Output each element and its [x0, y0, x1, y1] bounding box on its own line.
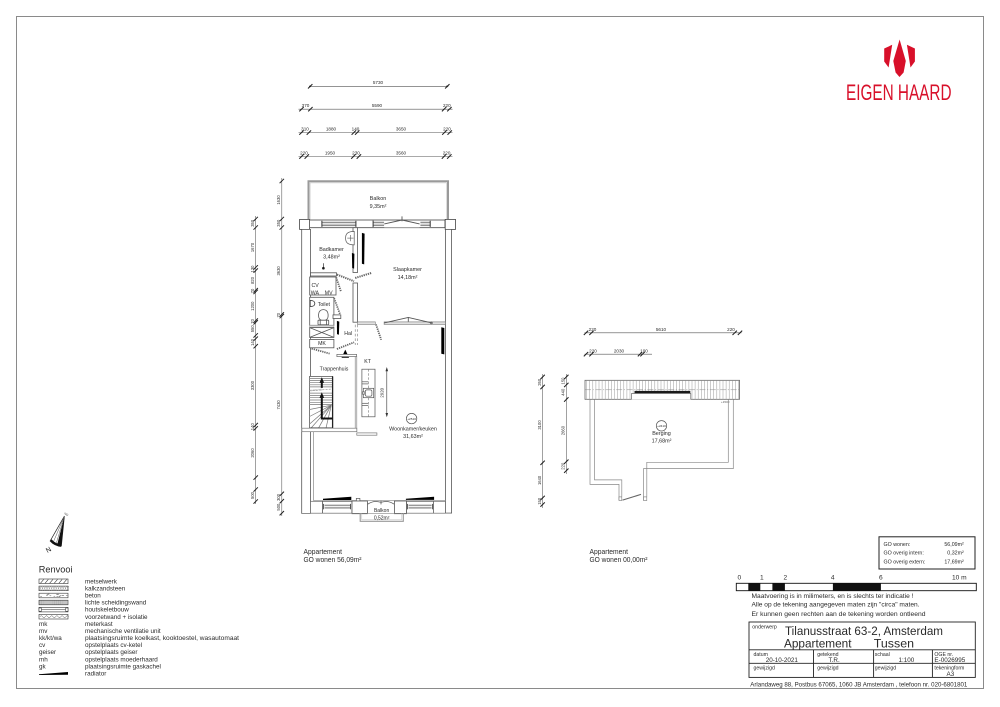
- svg-text:mk: mk: [39, 621, 48, 628]
- svg-text:70: 70: [250, 318, 255, 323]
- svg-text:220: 220: [443, 103, 451, 108]
- svg-text:370: 370: [302, 103, 310, 108]
- svg-text:Renvooi: Renvooi: [39, 565, 73, 575]
- svg-text:T.R.: T.R.: [829, 657, 840, 664]
- svg-text:1950: 1950: [325, 151, 336, 156]
- svg-text:820: 820: [250, 276, 255, 284]
- svg-text:260: 260: [537, 378, 542, 386]
- svg-text:gk: gk: [39, 663, 47, 670]
- svg-text:plaatsingsruimte koelkast, koo: plaatsingsruimte koelkast, kooktoestel, …: [85, 635, 239, 642]
- svg-text:17,69m²: 17,69m²: [944, 559, 964, 565]
- svg-text:500: 500: [276, 503, 281, 511]
- svg-text:5590: 5590: [372, 103, 383, 108]
- svg-text:220: 220: [589, 327, 597, 332]
- svg-text:220: 220: [443, 127, 451, 132]
- svg-text:cv: cv: [39, 642, 46, 649]
- svg-text:meterkast: meterkast: [85, 621, 113, 628]
- svg-text:voorzetwand + isolatie: voorzetwand + isolatie: [85, 614, 148, 621]
- svg-text:3,48m²: 3,48m²: [323, 255, 340, 261]
- svg-text:1:100: 1:100: [899, 657, 915, 664]
- svg-text:5610: 5610: [656, 327, 667, 332]
- svg-text:Woonkamer/keuken: Woonkamer/keuken: [389, 426, 437, 432]
- svg-text:140: 140: [250, 338, 255, 346]
- svg-text:schaal: schaal: [875, 652, 890, 658]
- svg-text:GO wonen 00,00m²: GO wonen 00,00m²: [590, 555, 648, 564]
- svg-text:+2410: +2410: [657, 424, 666, 428]
- svg-text:5730: 5730: [373, 80, 384, 85]
- svg-text:150: 150: [561, 377, 566, 385]
- svg-text:GO overig extern:: GO overig extern:: [884, 559, 926, 565]
- svg-text:1: 1: [760, 575, 764, 582]
- svg-text:9,35m²: 9,35m²: [370, 204, 387, 210]
- svg-text:3560: 3560: [396, 151, 407, 156]
- svg-text:70: 70: [276, 312, 281, 317]
- svg-text:geiser: geiser: [39, 649, 56, 656]
- svg-text:Maatvoering is in milimeters,: Maatvoering is in milimeters, en is slec…: [752, 593, 914, 600]
- svg-text:2920: 2920: [380, 387, 385, 397]
- svg-text:1630: 1630: [276, 195, 281, 205]
- svg-text:550: 550: [250, 325, 255, 333]
- svg-text:gewijzigd: gewijzigd: [875, 666, 896, 672]
- svg-text:440: 440: [561, 388, 566, 396]
- svg-text:130: 130: [250, 265, 255, 273]
- svg-text:Appartement: Appartement: [784, 636, 852, 650]
- svg-text:Hal: Hal: [344, 331, 352, 337]
- svg-text:opstelplaats cv-ketel: opstelplaats cv-ketel: [85, 642, 142, 649]
- svg-text:7430: 7430: [276, 400, 281, 410]
- svg-text:140: 140: [250, 423, 255, 431]
- svg-text:4: 4: [831, 575, 835, 582]
- svg-text:kalkzandsteen: kalkzandsteen: [85, 586, 126, 593]
- svg-text:56,09m²: 56,09m²: [944, 542, 964, 548]
- svg-text:mv: mv: [39, 628, 48, 635]
- svg-text:310: 310: [301, 127, 309, 132]
- svg-text:350: 350: [276, 219, 281, 227]
- svg-text:lichte scheidingswand: lichte scheidingswand: [85, 600, 147, 607]
- svg-text:2030: 2030: [614, 348, 625, 353]
- svg-text:mechanische ventilatie unit: mechanische ventilatie unit: [85, 628, 161, 635]
- svg-text:6: 6: [879, 575, 883, 582]
- svg-text:3300: 3300: [250, 380, 255, 390]
- svg-text:Toilet: Toilet: [318, 302, 331, 308]
- svg-text:gewijzigd: gewijzigd: [754, 666, 775, 672]
- svg-text:220: 220: [561, 462, 566, 470]
- svg-text:70: 70: [250, 288, 255, 293]
- svg-text:10 m: 10 m: [952, 575, 967, 582]
- svg-text:A3: A3: [947, 671, 955, 678]
- svg-text:1200: 1200: [250, 301, 255, 311]
- svg-text:houtskeletbouw: houtskeletbouw: [85, 607, 129, 614]
- svg-text:2060: 2060: [250, 448, 255, 458]
- svg-text:EIGEN HAARD: EIGEN HAARD: [846, 80, 952, 105]
- svg-text:500: 500: [250, 491, 255, 499]
- svg-text:kk/kt/wa: kk/kt/wa: [39, 635, 62, 642]
- svg-text:3650: 3650: [396, 127, 407, 132]
- svg-text:2660: 2660: [561, 425, 566, 435]
- svg-text:Badkamer: Badkamer: [319, 247, 344, 253]
- svg-text:gewijzigd: gewijzigd: [817, 666, 838, 672]
- svg-text:Alle op de tekening aangegeven: Alle op de tekening aangegeven maten zij…: [752, 602, 920, 609]
- svg-text:mh: mh: [39, 656, 48, 663]
- svg-text:MV: MV: [325, 290, 333, 296]
- svg-text:1640: 1640: [537, 475, 542, 485]
- svg-text:onderwerp: onderwerp: [752, 625, 777, 631]
- svg-text:150: 150: [537, 497, 542, 505]
- svg-text:Balkon: Balkon: [370, 196, 386, 202]
- svg-text:14,18m²: 14,18m²: [398, 275, 418, 281]
- svg-text:0,32m²: 0,32m²: [947, 551, 964, 557]
- svg-text:MK: MK: [318, 341, 326, 347]
- svg-text:300: 300: [276, 493, 281, 501]
- svg-text:beton: beton: [85, 593, 101, 600]
- svg-text:E-0026995: E-0026995: [934, 657, 965, 664]
- svg-text:opstelplaats geiser: opstelplaats geiser: [85, 649, 138, 656]
- svg-text:1880: 1880: [326, 127, 337, 132]
- svg-text:Tussen: Tussen: [874, 636, 914, 650]
- svg-text:Balkon: Balkon: [374, 508, 390, 514]
- svg-text:31,63m²: 31,63m²: [403, 434, 423, 440]
- svg-text:0,52m²: 0,52m²: [374, 515, 390, 521]
- svg-text:220: 220: [300, 151, 308, 156]
- svg-text:GO wonen:: GO wonen:: [884, 542, 911, 548]
- svg-text:100: 100: [640, 348, 648, 353]
- svg-text:Trappenhuis: Trappenhuis: [320, 367, 349, 373]
- svg-text:3630: 3630: [276, 266, 281, 276]
- svg-text:230: 230: [352, 151, 360, 156]
- svg-text:220: 220: [589, 348, 597, 353]
- svg-text:Slaapkamer: Slaapkamer: [393, 267, 422, 273]
- svg-text:plaatsingsruimte gaskachel: plaatsingsruimte gaskachel: [85, 663, 161, 670]
- svg-text:Arlandaweg 88, Postbus 67065,: Arlandaweg 88, Postbus 67065, 1060 JB Am…: [750, 682, 967, 689]
- svg-text:3100: 3100: [537, 420, 542, 430]
- svg-text:2: 2: [784, 575, 788, 582]
- svg-text:20-10-2021: 20-10-2021: [766, 657, 799, 664]
- svg-text:140: 140: [352, 127, 360, 132]
- svg-text:opstelplaats moederhaard: opstelplaats moederhaard: [85, 656, 158, 663]
- svg-text:220: 220: [443, 151, 451, 156]
- svg-text:+2510: +2510: [407, 417, 416, 421]
- svg-text:metselwerk: metselwerk: [85, 578, 118, 585]
- svg-text:WA: WA: [311, 290, 320, 296]
- svg-text:radiator: radiator: [85, 670, 106, 677]
- svg-text:17,68m²: 17,68m²: [652, 438, 672, 444]
- svg-text:0: 0: [738, 575, 742, 582]
- svg-text:GO overig intern:: GO overig intern:: [884, 551, 924, 557]
- svg-text:KT: KT: [364, 359, 371, 365]
- svg-text:GO wonen 56,09m²: GO wonen 56,09m²: [304, 555, 362, 564]
- svg-text:Er kunnen geen rechten aan de: Er kunnen geen rechten aan de tekening w…: [752, 611, 926, 618]
- svg-text:350: 350: [250, 219, 255, 227]
- svg-text:220: 220: [727, 327, 735, 332]
- svg-text:Berging: Berging: [652, 431, 671, 437]
- svg-text:CV: CV: [312, 283, 320, 289]
- svg-text:1670: 1670: [250, 242, 255, 252]
